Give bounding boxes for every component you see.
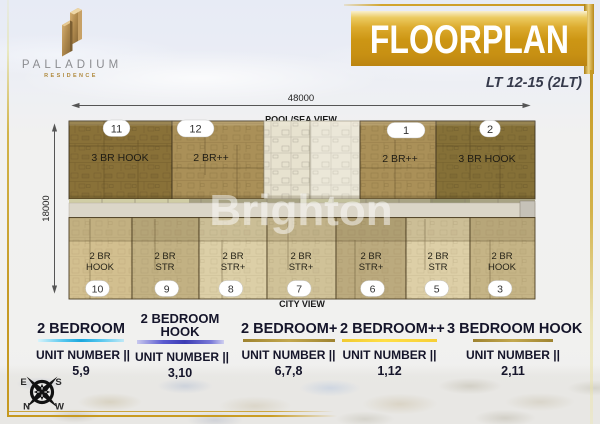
svg-text:2 BR++: 2 BR++ [193,152,229,164]
svg-text:10: 10 [92,284,104,296]
svg-text:HOOK: HOOK [488,262,517,273]
svg-text:2 BR: 2 BR [427,251,448,262]
svg-text:8: 8 [228,284,234,296]
svg-text:STR: STR [429,262,448,273]
svg-text:6: 6 [370,284,376,296]
svg-text:7: 7 [296,284,302,296]
svg-text:2 BR++: 2 BR++ [382,153,418,165]
svg-text:5: 5 [434,284,440,296]
svg-text:3 BR HOOK: 3 BR HOOK [91,152,148,164]
svg-text:2: 2 [487,124,493,136]
svg-text:1: 1 [403,125,409,137]
svg-text:3 BR HOOK: 3 BR HOOK [458,153,515,165]
svg-text:9: 9 [164,284,170,296]
svg-text:3: 3 [497,284,503,296]
svg-text:2 BR: 2 BR [491,251,512,262]
svg-text:STR+: STR+ [359,262,384,273]
svg-text:STR+: STR+ [221,262,246,273]
svg-text:12: 12 [189,124,201,136]
svg-text:HOOK: HOOK [86,262,115,273]
svg-text:2 BR: 2 BR [89,251,110,262]
svg-text:Brighton: Brighton [209,186,392,235]
svg-text:CITY VIEW: CITY VIEW [279,299,325,309]
svg-text:STR: STR [156,262,175,273]
svg-text:48000: 48000 [288,93,314,104]
svg-text:STR+: STR+ [289,262,314,273]
svg-text:2 BR: 2 BR [222,251,243,262]
svg-text:2 BR: 2 BR [154,251,175,262]
svg-text:E: E [20,377,26,388]
svg-text:2 BR: 2 BR [290,251,311,262]
svg-text:18000: 18000 [41,195,52,221]
svg-text:S: S [55,377,61,388]
svg-text:11: 11 [111,123,122,135]
svg-text:2 BR: 2 BR [360,251,381,262]
